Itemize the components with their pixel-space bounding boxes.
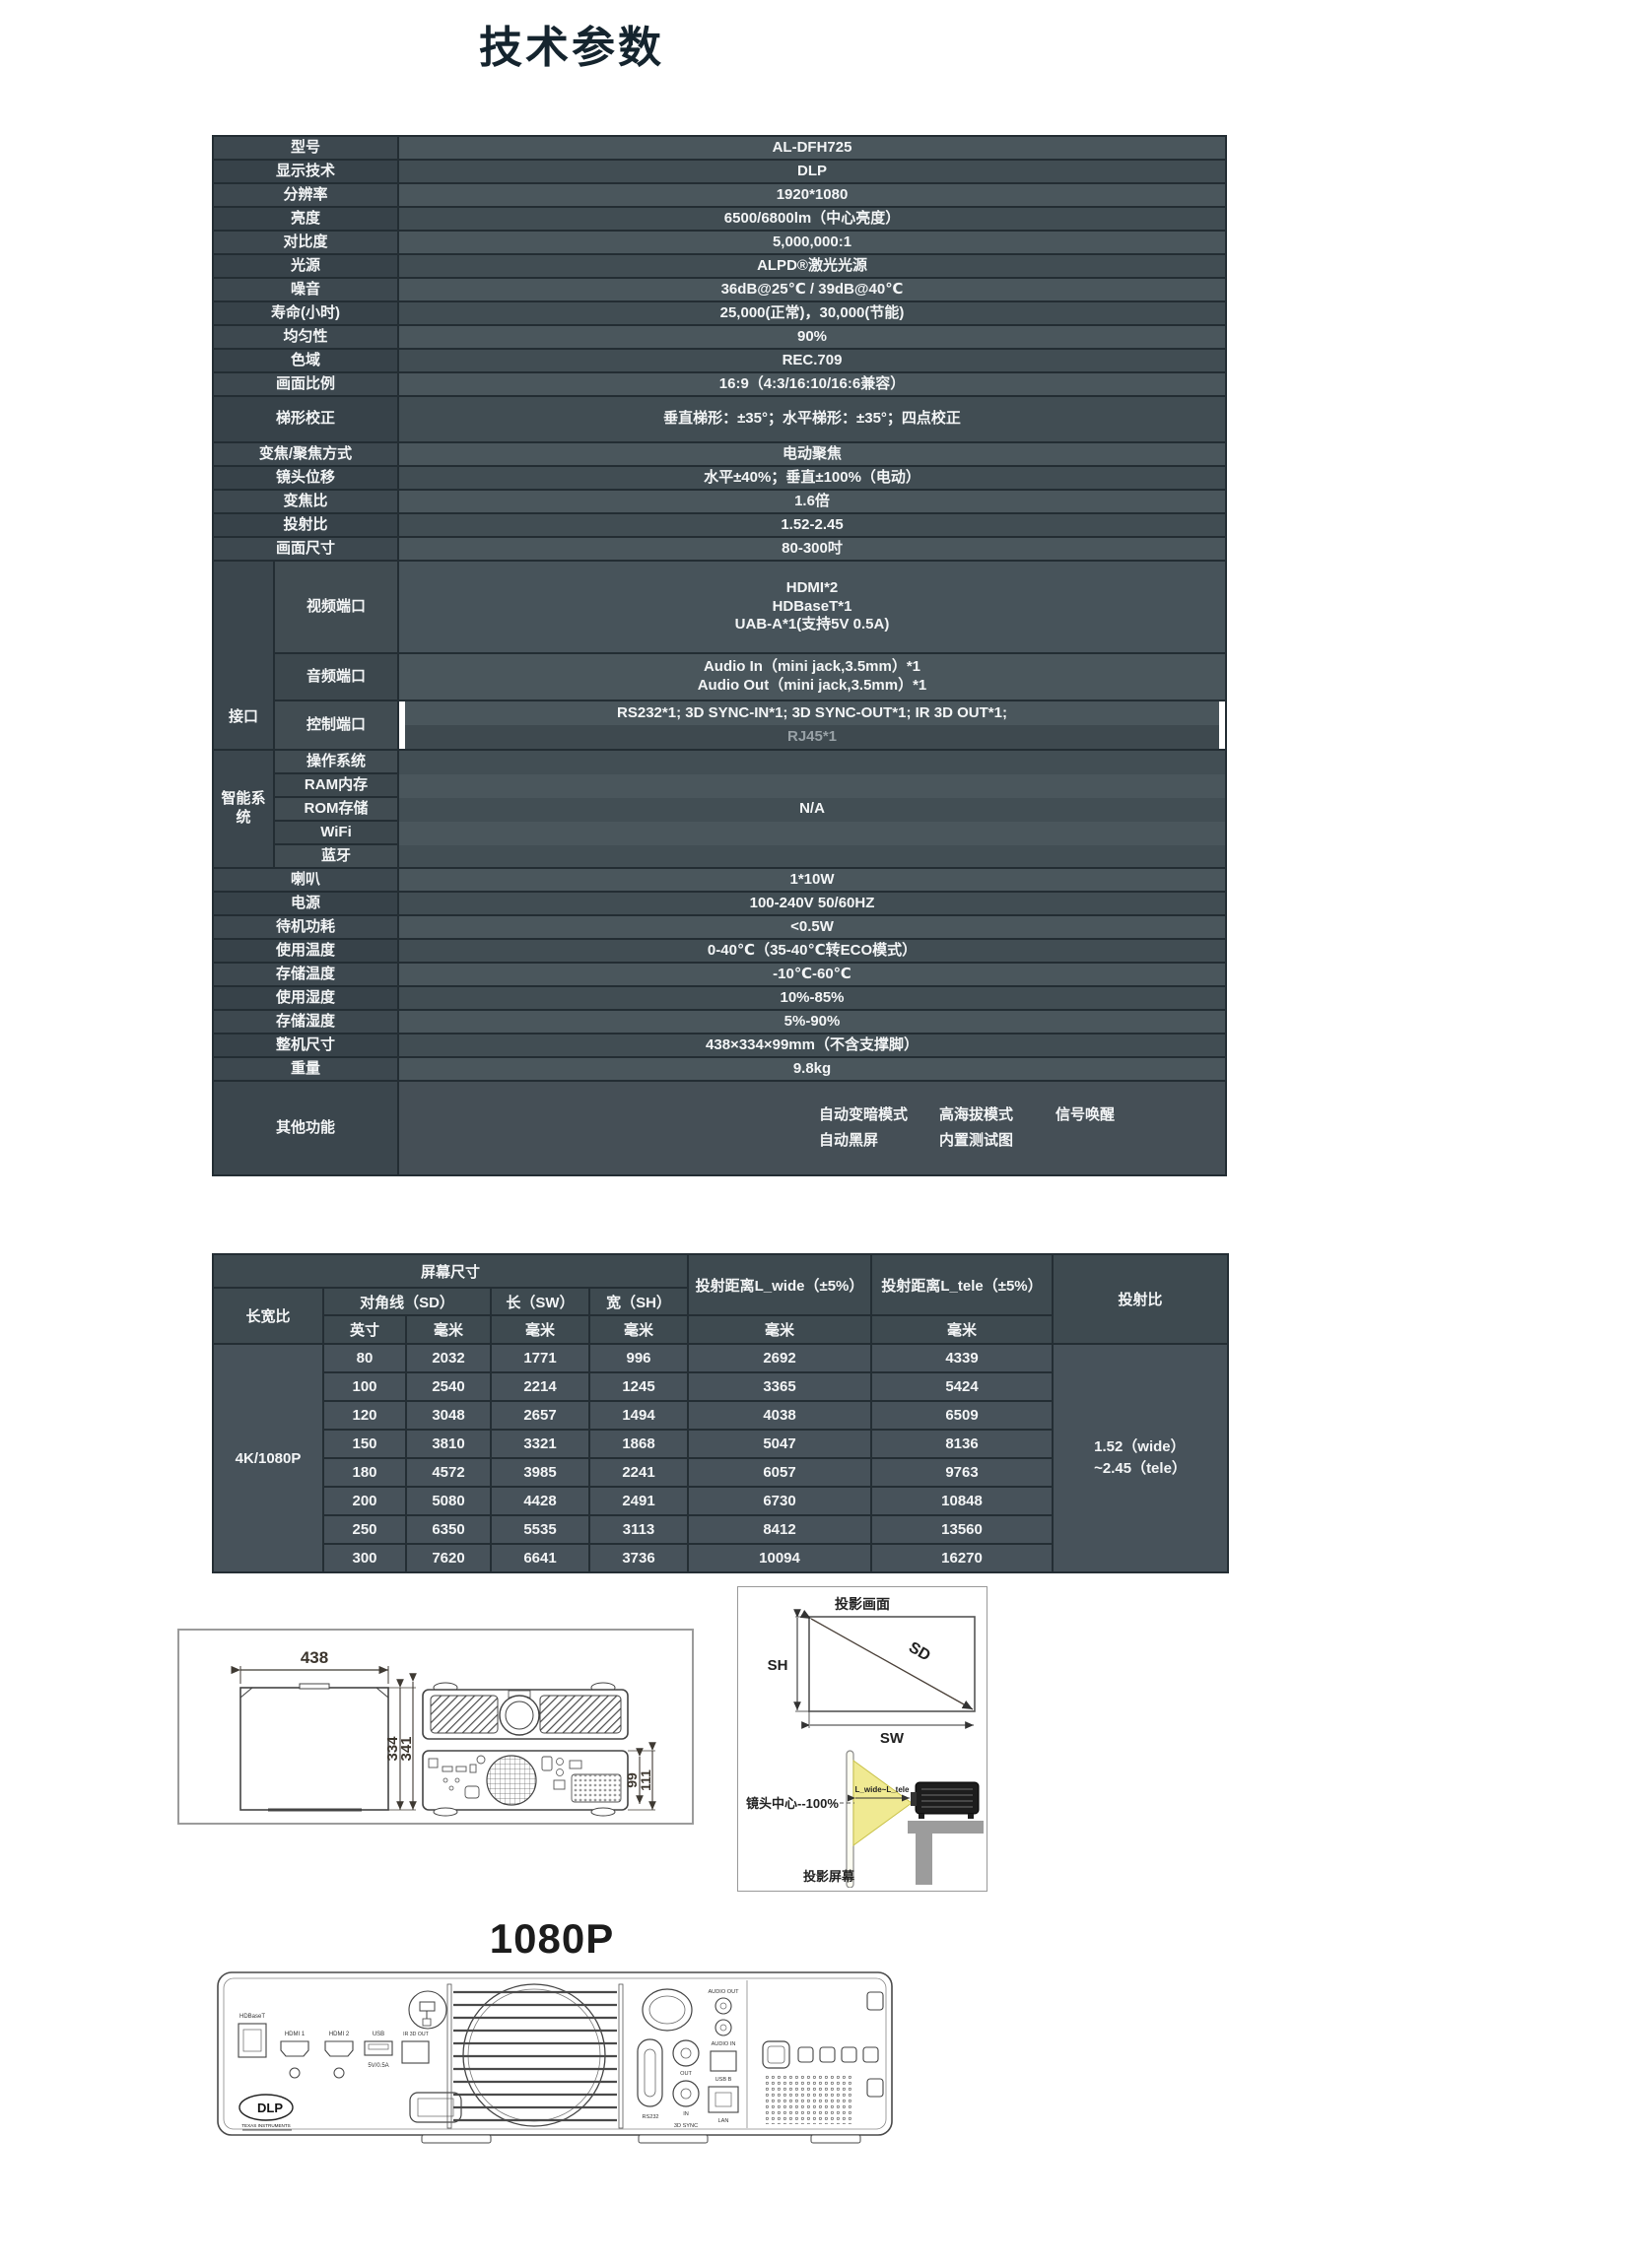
spec-value: -10℃-60℃ bbox=[398, 963, 1226, 986]
table-cell: 4038 bbox=[688, 1401, 871, 1430]
usb-label: USB bbox=[373, 2032, 384, 2037]
enter-button bbox=[763, 2041, 789, 2068]
sync-label: 3D SYNC bbox=[674, 2123, 698, 2129]
table-cell: 2692 bbox=[688, 1344, 871, 1372]
smart-value: N/A bbox=[398, 750, 1226, 868]
table-cell: 120 bbox=[323, 1401, 406, 1430]
video-port-label: 视频端口 bbox=[274, 561, 398, 653]
spec-value: 水平±40%；垂直±100%（电动） bbox=[398, 466, 1226, 490]
spec-value: 1.6倍 bbox=[398, 490, 1226, 513]
spec-label: 镜头位移 bbox=[213, 466, 398, 490]
spec-label: 投射比 bbox=[213, 513, 398, 537]
spec-value: 90% bbox=[398, 325, 1226, 349]
spec-value: 垂直梯形：±35°；水平梯形：±35°；四点校正 bbox=[398, 396, 1226, 442]
other-item: 高海拔模式 bbox=[939, 1106, 1055, 1125]
other-functions-value: 自动变暗模式 高海拔模式 信号唤醒 自动黑屏 内置测试图 bbox=[398, 1081, 1226, 1175]
projection-screen-label: 投影屏幕 bbox=[803, 1869, 855, 1884]
model-banner: 1080P bbox=[434, 1915, 670, 1963]
audio-in-label: AUDIO IN bbox=[712, 2041, 736, 2047]
audio-line: Audio Out（mini jack,3.5mm）*1 bbox=[405, 677, 1219, 696]
throw-range-label: L_wide~L_tele bbox=[855, 1785, 910, 1794]
spec-label: 画面比例 bbox=[213, 372, 398, 396]
spec-value: REC.709 bbox=[398, 349, 1226, 372]
rear-speaker-grid bbox=[572, 1774, 621, 1802]
interface-group-label: 接口 bbox=[213, 561, 274, 750]
spec-value: 80-300吋 bbox=[398, 537, 1226, 561]
smart-row-label: WiFi bbox=[274, 821, 398, 844]
table-cell: 6641 bbox=[491, 1544, 589, 1572]
spec-value: 100-240V 50/60HZ bbox=[398, 892, 1226, 915]
spec-label: 分辨率 bbox=[213, 183, 398, 207]
video-line: HDMI*2 bbox=[405, 579, 1219, 598]
smart-row-label: 蓝牙 bbox=[274, 844, 398, 868]
table-cell: 3985 bbox=[491, 1458, 589, 1487]
spec-value: DLP bbox=[398, 160, 1226, 183]
lens-center-label: 镜头中心--100% bbox=[746, 1796, 839, 1811]
spec-label: 喇叭 bbox=[213, 868, 398, 892]
screen-rectangle: SD bbox=[809, 1617, 975, 1711]
spec-value: 6500/6800lm（中心亮度） bbox=[398, 207, 1226, 231]
audio-line: Audio In（mini jack,3.5mm）*1 bbox=[405, 658, 1219, 677]
other-functions-label: 其他功能 bbox=[213, 1081, 398, 1175]
spec-label: 变焦比 bbox=[213, 490, 398, 513]
spec-label: 存储温度 bbox=[213, 963, 398, 986]
speaker-grill bbox=[763, 2073, 853, 2124]
spec-label: 变焦/聚焦方式 bbox=[213, 442, 398, 466]
audio-out-label: AUDIO OUT bbox=[708, 1989, 739, 1995]
table-cell: 2214 bbox=[491, 1372, 589, 1401]
hdbaset-port bbox=[238, 2024, 266, 2057]
throw-ratio-cell: 1.52（wide） ~2.45（tele） bbox=[1053, 1344, 1228, 1572]
table-cell: 6509 bbox=[871, 1401, 1053, 1430]
other-item: 内置测试图 bbox=[939, 1132, 1055, 1151]
hdbaset-label: HDBaseT bbox=[239, 2014, 265, 2020]
audio-port-value: Audio In（mini jack,3.5mm）*1 Audio Out（mi… bbox=[398, 653, 1226, 700]
spec-label: 噪音 bbox=[213, 278, 398, 301]
spec-table: 型号AL-DFH725 显示技术DLP 分辨率1920*1080 亮度6500/… bbox=[212, 135, 1227, 1176]
table-cell: 5080 bbox=[406, 1487, 491, 1515]
table-cell: 180 bbox=[323, 1458, 406, 1487]
front-view-drawing bbox=[423, 1683, 628, 1739]
sh-dimension: SH bbox=[768, 1617, 809, 1711]
usb-b-label: USB B bbox=[715, 2077, 732, 2083]
table-cell: 3736 bbox=[589, 1544, 688, 1572]
other-item: 自动黑屏 bbox=[819, 1132, 939, 1151]
hdmi2-label: HDMI 2 bbox=[329, 2032, 350, 2037]
spec-value: 438×334×99mm（不含支撑脚） bbox=[398, 1034, 1226, 1057]
spec-label: 电源 bbox=[213, 892, 398, 915]
rear-view-drawing bbox=[423, 1751, 628, 1816]
fan-grille bbox=[447, 1984, 623, 2128]
table-cell: 250 bbox=[323, 1515, 406, 1544]
spec-label: 使用湿度 bbox=[213, 986, 398, 1010]
control-line: RS232*1; 3D SYNC-IN*1; 3D SYNC-OUT*1; IR… bbox=[405, 701, 1219, 725]
table-cell: 8136 bbox=[871, 1430, 1053, 1458]
other-item: 信号唤醒 bbox=[1055, 1106, 1219, 1125]
table-stand bbox=[908, 1821, 984, 1885]
table-cell: 7620 bbox=[406, 1544, 491, 1572]
unit-inch: 英寸 bbox=[323, 1315, 406, 1344]
table-cell: 200 bbox=[323, 1487, 406, 1515]
ratio-line: 1.52（wide） bbox=[1094, 1438, 1186, 1455]
light-cone bbox=[853, 1761, 912, 1845]
spec-value: 1*10W bbox=[398, 868, 1226, 892]
table-cell: 1494 bbox=[589, 1401, 688, 1430]
dlp-text: DLP bbox=[257, 2101, 283, 2115]
spec-label: 画面尺寸 bbox=[213, 537, 398, 561]
rs232-label: RS232 bbox=[642, 2114, 658, 2120]
unit-mm: 毫米 bbox=[589, 1315, 688, 1344]
table-cell: 2032 bbox=[406, 1344, 491, 1372]
sync-in-label: IN bbox=[683, 2111, 689, 2117]
header-length: 长（SW） bbox=[491, 1288, 589, 1315]
hdmi2-port bbox=[325, 2041, 353, 2056]
table-cell: 2657 bbox=[491, 1401, 589, 1430]
spec-value: ALPD®激光光源 bbox=[398, 254, 1226, 278]
table-cell: 10094 bbox=[688, 1544, 871, 1572]
spec-value: 0-40℃（35-40℃转ECO模式） bbox=[398, 939, 1226, 963]
spec-label: 整机尺寸 bbox=[213, 1034, 398, 1057]
spec-label: 显示技术 bbox=[213, 160, 398, 183]
unit-mm: 毫米 bbox=[688, 1315, 871, 1344]
ac-socket bbox=[643, 1989, 692, 2031]
table-cell: 3321 bbox=[491, 1430, 589, 1458]
table-cell: 2241 bbox=[589, 1458, 688, 1487]
header-width: 宽（SH） bbox=[589, 1288, 688, 1315]
projector-illustration bbox=[911, 1782, 979, 1819]
rear-panel-diagram: HDBaseT HDMI 1 HDMI 2 USB 5V/0.5A IR 3D … bbox=[215, 1963, 895, 2155]
spec-value: 16:9（4:3/16:10/16:6兼容） bbox=[398, 372, 1226, 396]
table-cell: 2540 bbox=[406, 1372, 491, 1401]
spec-value: <0.5W bbox=[398, 915, 1226, 939]
control-port-value: RS232*1; 3D SYNC-IN*1; 3D SYNC-OUT*1; IR… bbox=[398, 700, 1226, 750]
spec-label: 亮度 bbox=[213, 207, 398, 231]
table-cell: 4428 bbox=[491, 1487, 589, 1515]
dim-111-label: 111 bbox=[638, 1769, 653, 1791]
throw-illustration: 镜头中心--100% L_wide~L_tele bbox=[746, 1751, 984, 1888]
power-button bbox=[867, 1992, 883, 2010]
spec-value: 5%-90% bbox=[398, 1010, 1226, 1034]
video-line: HDBaseT*1 bbox=[405, 598, 1219, 617]
table-cell: 4572 bbox=[406, 1458, 491, 1487]
table-cell: 8412 bbox=[688, 1515, 871, 1544]
spec-value: 25,000(正常)，30,000(节能) bbox=[398, 301, 1226, 325]
sync-out-label: OUT bbox=[680, 2071, 692, 2077]
nav-button bbox=[820, 2047, 835, 2062]
table-cell: 300 bbox=[323, 1544, 406, 1572]
video-port-value: HDMI*2 HDBaseT*1 UAB-A*1(支持5V 0.5A) bbox=[398, 561, 1226, 653]
sw-dimension: SW bbox=[809, 1711, 974, 1747]
page-title: 技术参数 bbox=[0, 12, 1143, 75]
header-lwide: 投射距离L_wide（±5%） bbox=[688, 1254, 871, 1315]
lan-label: LAN bbox=[718, 2118, 729, 2124]
unit-mm: 毫米 bbox=[491, 1315, 589, 1344]
table-cell: 6057 bbox=[688, 1458, 871, 1487]
spec-value: AL-DFH725 bbox=[398, 136, 1226, 160]
header-throw-ratio: 投射比 bbox=[1053, 1254, 1228, 1344]
spec-value: 电动聚焦 bbox=[398, 442, 1226, 466]
spec-label: 型号 bbox=[213, 136, 398, 160]
table-cell: 5047 bbox=[688, 1430, 871, 1458]
table-cell: 4339 bbox=[871, 1344, 1053, 1372]
usb-b-port bbox=[711, 2051, 736, 2071]
projection-screen-title: 投影画面 bbox=[835, 1596, 890, 1612]
spec-label: 对比度 bbox=[213, 231, 398, 254]
spec-label: 寿命(小时) bbox=[213, 301, 398, 325]
ti-text: TEXAS INSTRUMENTS bbox=[241, 2123, 291, 2128]
table-cell: 2491 bbox=[589, 1487, 688, 1515]
spec-label: 梯形校正 bbox=[213, 396, 398, 442]
usb-power-label: 5V/0.5A bbox=[368, 2063, 388, 2069]
hdmi1-label: HDMI 1 bbox=[285, 2032, 306, 2037]
table-cell: 9763 bbox=[871, 1458, 1053, 1487]
table-cell: 13560 bbox=[871, 1515, 1053, 1544]
header-ltele: 投射距离L_tele（±5%） bbox=[871, 1254, 1053, 1315]
spec-label: 使用温度 bbox=[213, 939, 398, 963]
smart-row-label: RAM内存 bbox=[274, 773, 398, 797]
smart-row-label: ROM存储 bbox=[274, 797, 398, 821]
ratio-line: ~2.45（tele） bbox=[1094, 1460, 1187, 1477]
table-cell: 6730 bbox=[688, 1487, 871, 1515]
spec-label: 均匀性 bbox=[213, 325, 398, 349]
menu-button bbox=[867, 2079, 883, 2097]
spec-value: 9.8kg bbox=[398, 1057, 1226, 1081]
ir-3d-out-label: IR 3D OUT bbox=[403, 2032, 429, 2037]
other-item: 自动变暗模式 bbox=[819, 1106, 939, 1125]
screen-bar bbox=[847, 1751, 853, 1888]
top-view-drawing bbox=[240, 1684, 388, 1810]
spec-label: 存储湿度 bbox=[213, 1010, 398, 1034]
unit-mm: 毫米 bbox=[871, 1315, 1053, 1344]
table-cell: 3365 bbox=[688, 1372, 871, 1401]
spec-label: 待机功耗 bbox=[213, 915, 398, 939]
table-cell: 80 bbox=[323, 1344, 406, 1372]
table-cell: 10848 bbox=[871, 1487, 1053, 1515]
unit-mm: 毫米 bbox=[406, 1315, 491, 1344]
throw-distance-table: 屏幕尺寸 投射距离L_wide（±5%） 投射距离L_tele（±5%） 投射比… bbox=[212, 1253, 1229, 1573]
header-screen-size: 屏幕尺寸 bbox=[213, 1254, 688, 1288]
audio-in-jack bbox=[715, 2020, 731, 2035]
dim-438-label: 438 bbox=[301, 1648, 328, 1667]
audio-out-jack bbox=[715, 1998, 731, 2014]
spec-value: 5,000,000:1 bbox=[398, 231, 1226, 254]
spec-label: 光源 bbox=[213, 254, 398, 278]
rear-fan bbox=[487, 1756, 536, 1805]
table-cell: 150 bbox=[323, 1430, 406, 1458]
nav-button bbox=[842, 2047, 856, 2062]
spec-value: 1.52-2.45 bbox=[398, 513, 1226, 537]
spec-value: 10%-85% bbox=[398, 986, 1226, 1010]
table-cell: 6350 bbox=[406, 1515, 491, 1544]
table-cell: 996 bbox=[589, 1344, 688, 1372]
spec-value: 1920*1080 bbox=[398, 183, 1226, 207]
spec-label: 重量 bbox=[213, 1057, 398, 1081]
audio-port-label: 音频端口 bbox=[274, 653, 398, 700]
ir-3d-out-port bbox=[402, 2041, 429, 2063]
table-cell: 1771 bbox=[491, 1344, 589, 1372]
width-dimension: 438 bbox=[240, 1648, 388, 1684]
video-line: UAB-A*1(支持5V 0.5A) bbox=[405, 616, 1219, 634]
ir-sensor bbox=[409, 1991, 446, 2029]
smart-group-label: 智能系统 bbox=[213, 750, 274, 868]
sw-label: SW bbox=[880, 1730, 905, 1747]
header-aspect: 长宽比 bbox=[213, 1288, 323, 1344]
table-cell: 1245 bbox=[589, 1372, 688, 1401]
table-cell: 16270 bbox=[871, 1544, 1053, 1572]
control-line: RJ45*1 bbox=[405, 725, 1219, 749]
header-diagonal: 对角线（SD） bbox=[323, 1288, 491, 1315]
nav-button bbox=[798, 2047, 813, 2062]
table-cell: 100 bbox=[323, 1372, 406, 1401]
dim-341-label: 341 bbox=[398, 1736, 415, 1761]
sh-label: SH bbox=[768, 1657, 788, 1674]
aspect-cell: 4K/1080P bbox=[213, 1344, 323, 1572]
spec-label: 色域 bbox=[213, 349, 398, 372]
control-port-label: 控制端口 bbox=[274, 700, 398, 750]
lan-port bbox=[709, 2087, 738, 2112]
spec-value: 36dB@25℃ / 39dB@40℃ bbox=[398, 278, 1226, 301]
table-cell: 1868 bbox=[589, 1430, 688, 1458]
projection-diagram: 投影画面 SD SH SW bbox=[737, 1586, 987, 1892]
nav-button bbox=[863, 2047, 878, 2062]
hdmi1-port bbox=[281, 2041, 308, 2056]
table-cell: 3113 bbox=[589, 1515, 688, 1544]
spec-sheet-page: 技术参数 型号AL-DFH725 显示技术DLP 分辨率1920*1080 亮度… bbox=[0, 0, 1634, 2268]
table-cell: 5535 bbox=[491, 1515, 589, 1544]
table-cell: 5424 bbox=[871, 1372, 1053, 1401]
dimension-diagram: 438 334 341 bbox=[177, 1629, 694, 1825]
table-cell: 3048 bbox=[406, 1401, 491, 1430]
table-cell: 3810 bbox=[406, 1430, 491, 1458]
smart-row-label: 操作系统 bbox=[274, 750, 398, 773]
